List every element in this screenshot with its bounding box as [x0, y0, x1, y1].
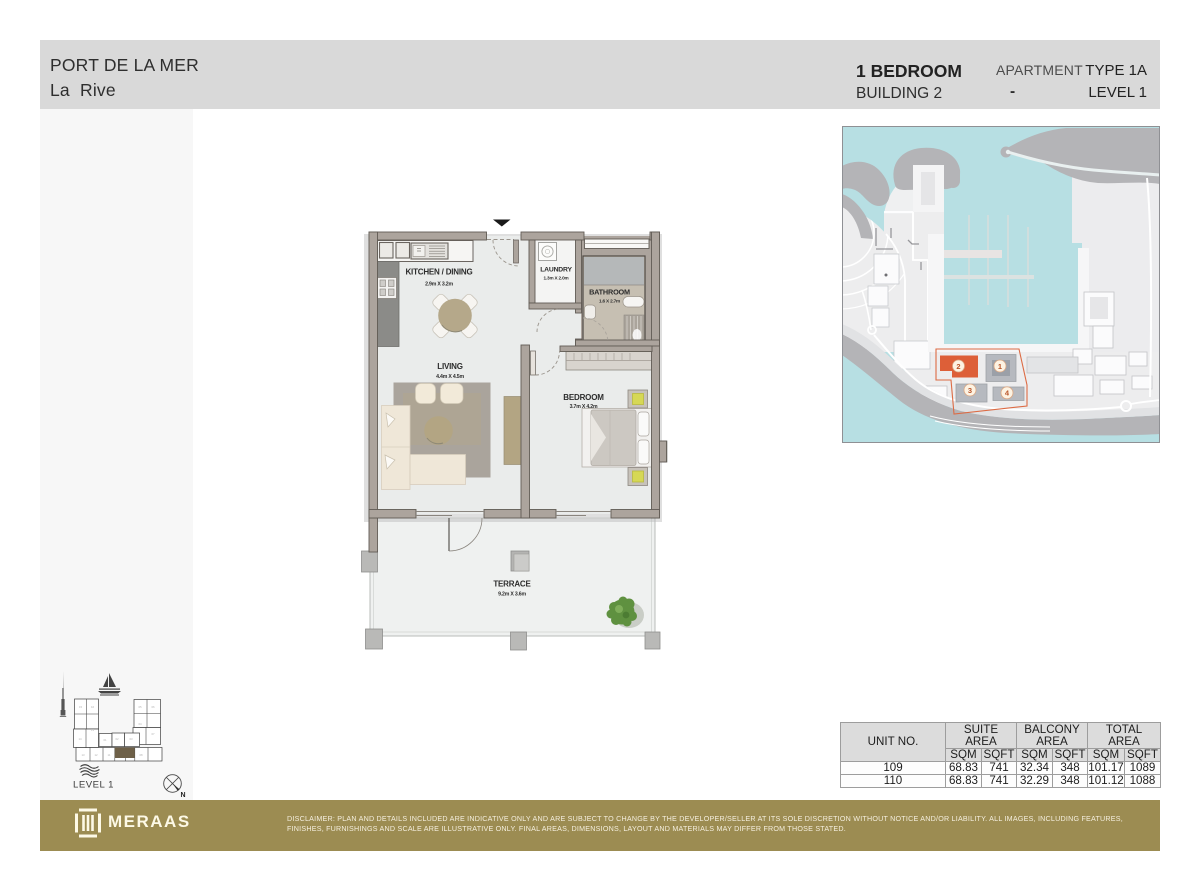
- svg-text:06: 06: [151, 705, 155, 709]
- svg-text:12: 12: [94, 753, 98, 757]
- svg-text:03: 03: [129, 737, 133, 741]
- svg-text:3.7m X 4.2m: 3.7m X 4.2m: [570, 404, 598, 410]
- svg-text:1.6 X 2.7m: 1.6 X 2.7m: [599, 299, 620, 304]
- svg-text:TERRACE: TERRACE: [493, 580, 531, 589]
- svg-text:02: 02: [115, 737, 119, 741]
- svg-text:9.2m X 3.6m: 9.2m X 3.6m: [498, 592, 526, 598]
- svg-text:15: 15: [79, 705, 83, 709]
- svg-text:04: 04: [138, 722, 142, 726]
- svg-text:1.3m X 2.0m: 1.3m X 2.0m: [544, 276, 569, 281]
- svg-text:1: 1: [998, 362, 1002, 371]
- svg-text:13: 13: [81, 753, 85, 757]
- svg-text:3: 3: [968, 386, 972, 395]
- svg-text:01: 01: [103, 738, 107, 742]
- svg-text:N: N: [181, 792, 186, 799]
- svg-text:16: 16: [91, 705, 95, 709]
- svg-text:14: 14: [78, 737, 82, 741]
- svg-text:11: 11: [108, 753, 111, 757]
- svg-text:05: 05: [138, 705, 142, 709]
- svg-text:KITCHEN / DINING: KITCHEN / DINING: [405, 268, 472, 277]
- svg-text:LEVEL 1: LEVEL 1: [73, 780, 114, 791]
- svg-text:07: 07: [151, 732, 155, 736]
- svg-text:LIVING: LIVING: [437, 362, 462, 371]
- svg-text:08: 08: [139, 753, 143, 757]
- svg-text:BATHROOM: BATHROOM: [589, 288, 630, 297]
- svg-text:2: 2: [956, 362, 960, 371]
- svg-text:BEDROOM: BEDROOM: [563, 393, 604, 402]
- svg-text:LAUNDRY: LAUNDRY: [540, 267, 572, 274]
- svg-text:2.9m X 3.2m: 2.9m X 3.2m: [425, 282, 453, 288]
- svg-text:13: 13: [91, 728, 95, 732]
- svg-text:4.4m X 4.5m: 4.4m X 4.5m: [436, 374, 464, 380]
